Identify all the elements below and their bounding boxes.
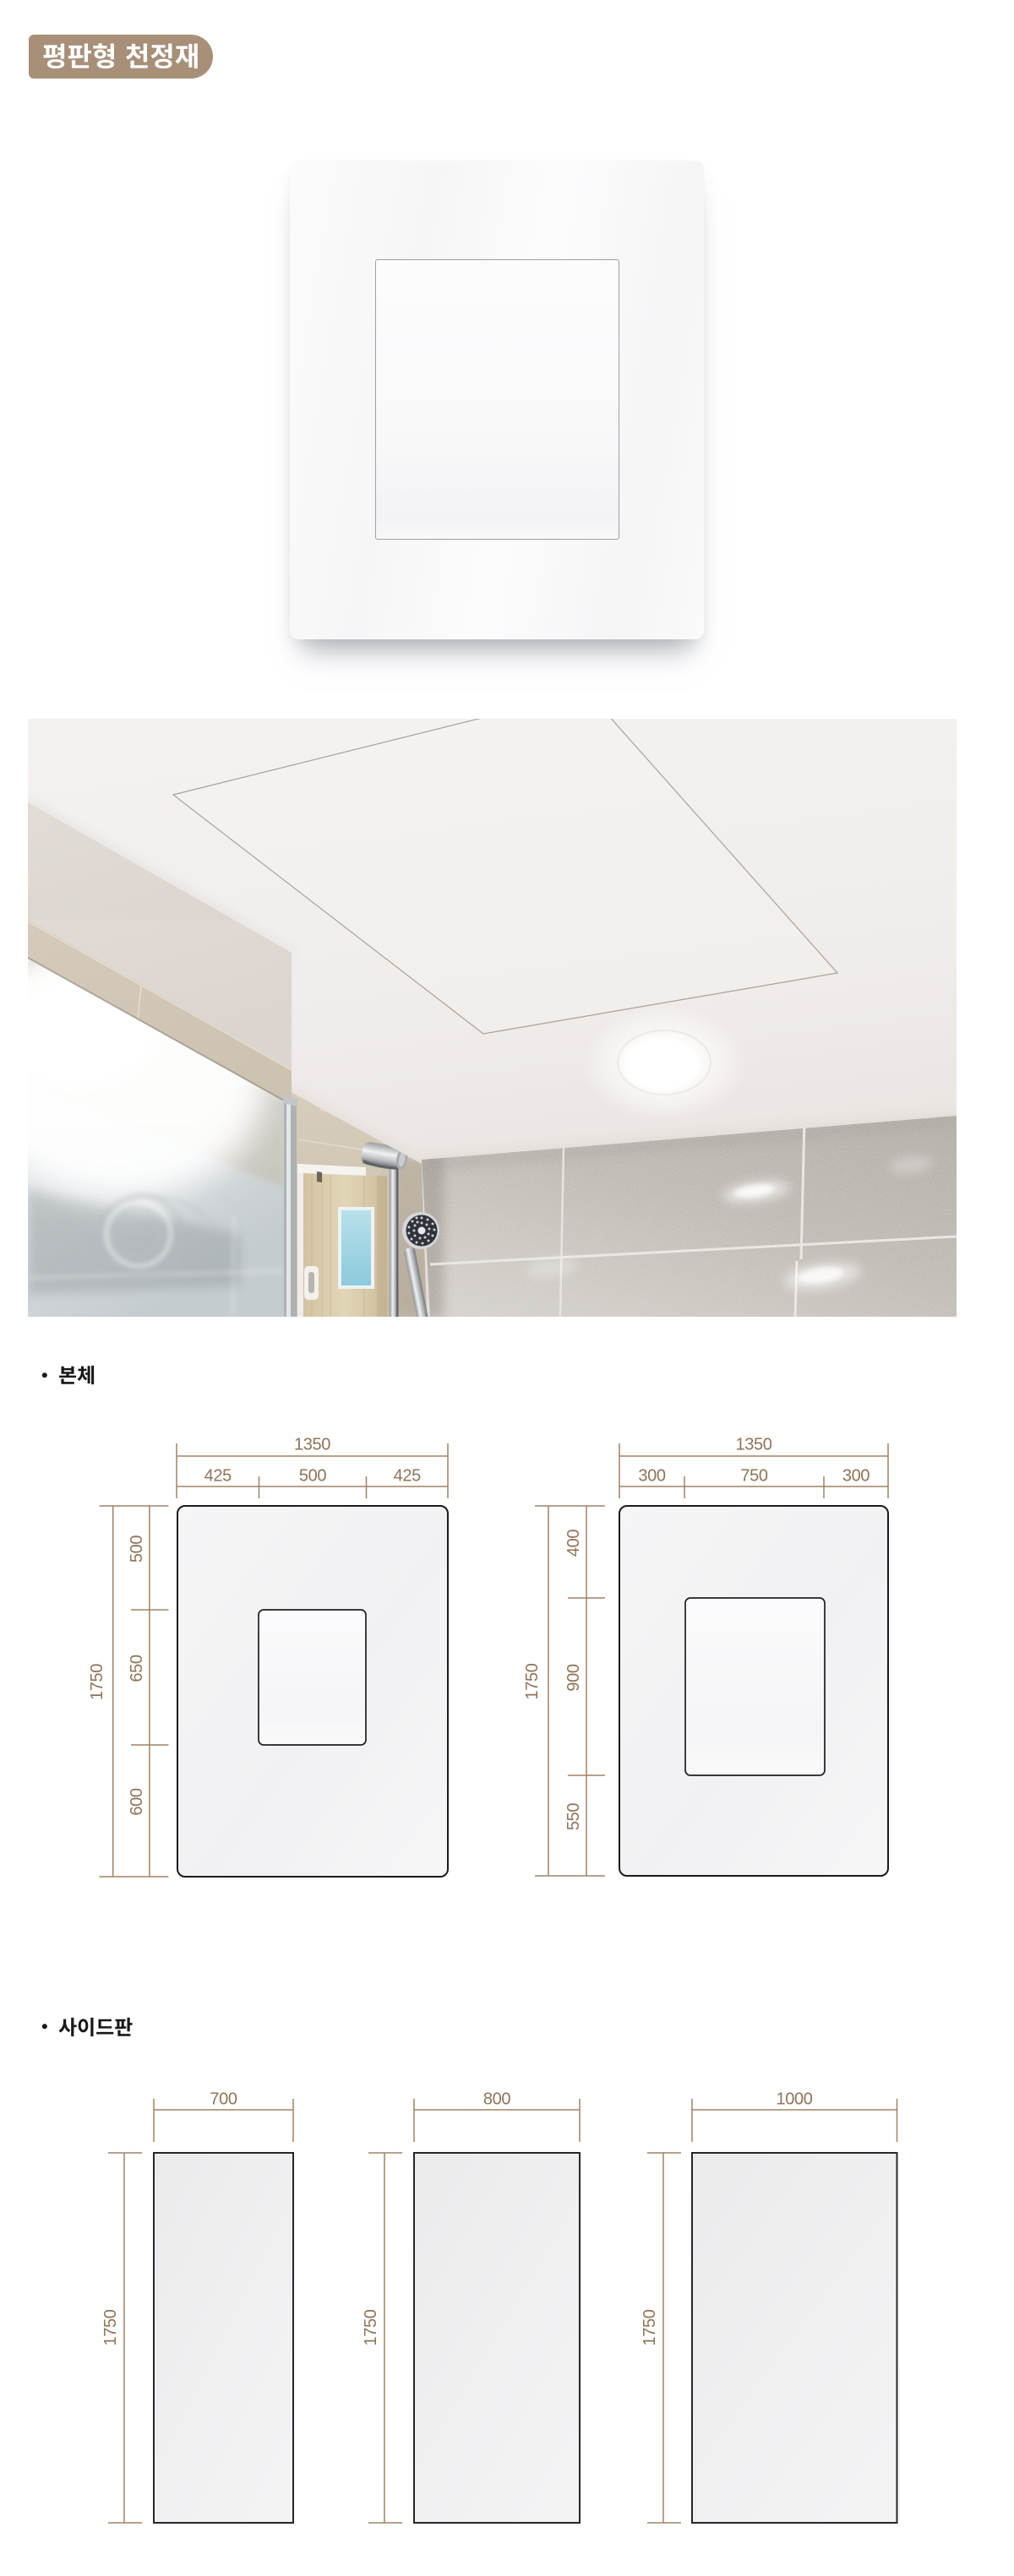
svg-text:300: 300 [842,1467,870,1486]
svg-text:1750: 1750 [88,1664,106,1700]
svg-text:700: 700 [210,2090,237,2109]
svg-text:1750: 1750 [523,1663,542,1699]
svg-text:425: 425 [204,1467,232,1486]
svg-text:900: 900 [564,1664,583,1691]
svg-text:1750: 1750 [641,2309,659,2345]
svg-text:750: 750 [740,1467,767,1486]
svg-text:650: 650 [128,1655,146,1682]
svg-text:425: 425 [394,1467,421,1486]
svg-text:1350: 1350 [294,1436,330,1454]
svg-text:1750: 1750 [101,2309,120,2345]
svg-text:1750: 1750 [362,2309,380,2345]
svg-text:500: 500 [299,1467,326,1486]
svg-text:600: 600 [128,1788,146,1815]
svg-text:550: 550 [564,1803,583,1830]
svg-text:1350: 1350 [736,1436,772,1454]
svg-text:800: 800 [483,2090,510,2109]
svg-text:300: 300 [638,1467,665,1486]
svg-text:500: 500 [128,1535,146,1562]
svg-text:1000: 1000 [777,2090,813,2109]
svg-text:400: 400 [564,1530,583,1557]
